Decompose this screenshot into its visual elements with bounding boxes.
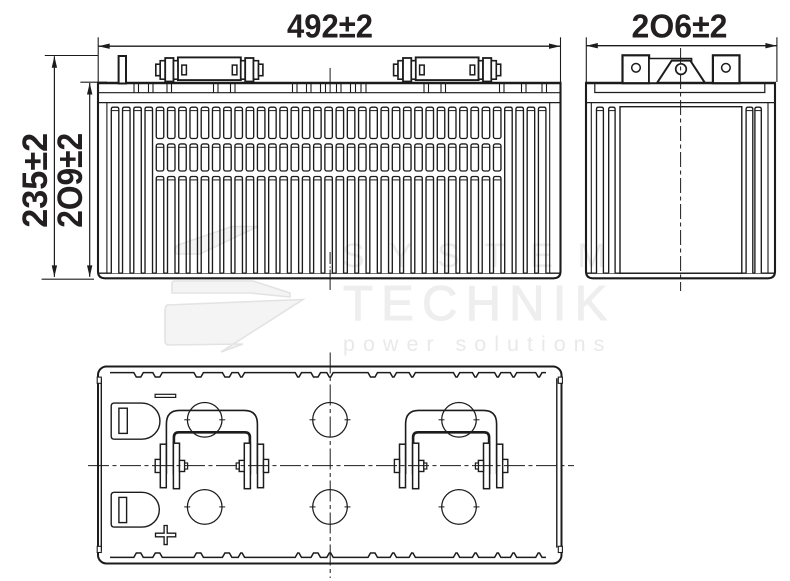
svg-text:2O6±2: 2O6±2 (632, 9, 728, 46)
svg-text:235±2: 235±2 (16, 133, 55, 228)
svg-text:2O9±2: 2O9±2 (51, 133, 90, 228)
svg-text:SYSTEM: SYSTEM (342, 237, 631, 275)
svg-text:492±2: 492±2 (287, 9, 373, 46)
svg-text:TECHNIK: TECHNIK (343, 277, 615, 331)
svg-text:power solutions: power solutions (343, 332, 612, 356)
